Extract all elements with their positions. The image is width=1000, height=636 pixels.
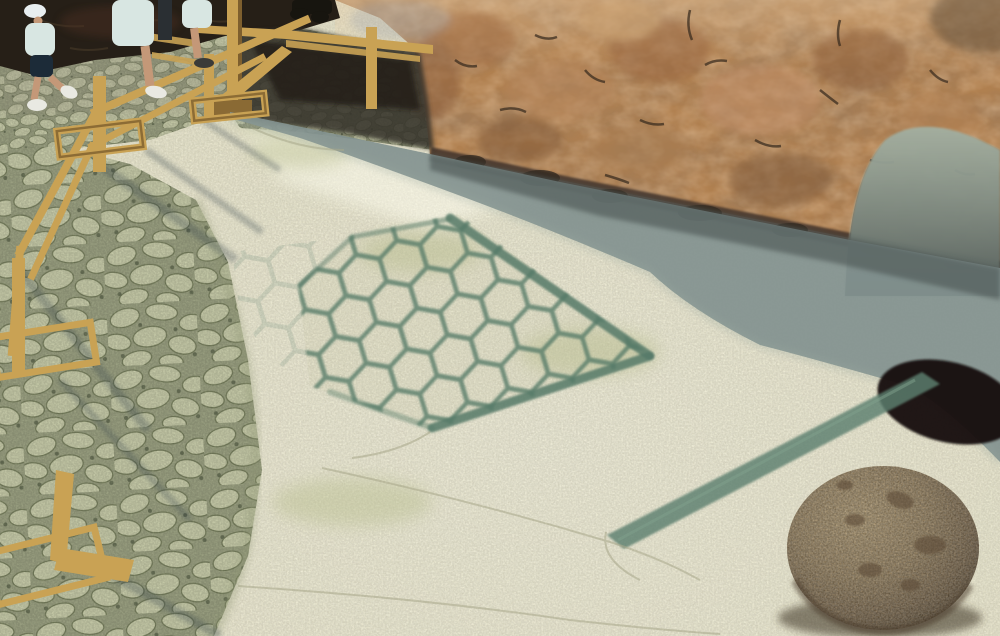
scene-photo bbox=[0, 0, 1000, 636]
photo-stage bbox=[0, 0, 1000, 636]
